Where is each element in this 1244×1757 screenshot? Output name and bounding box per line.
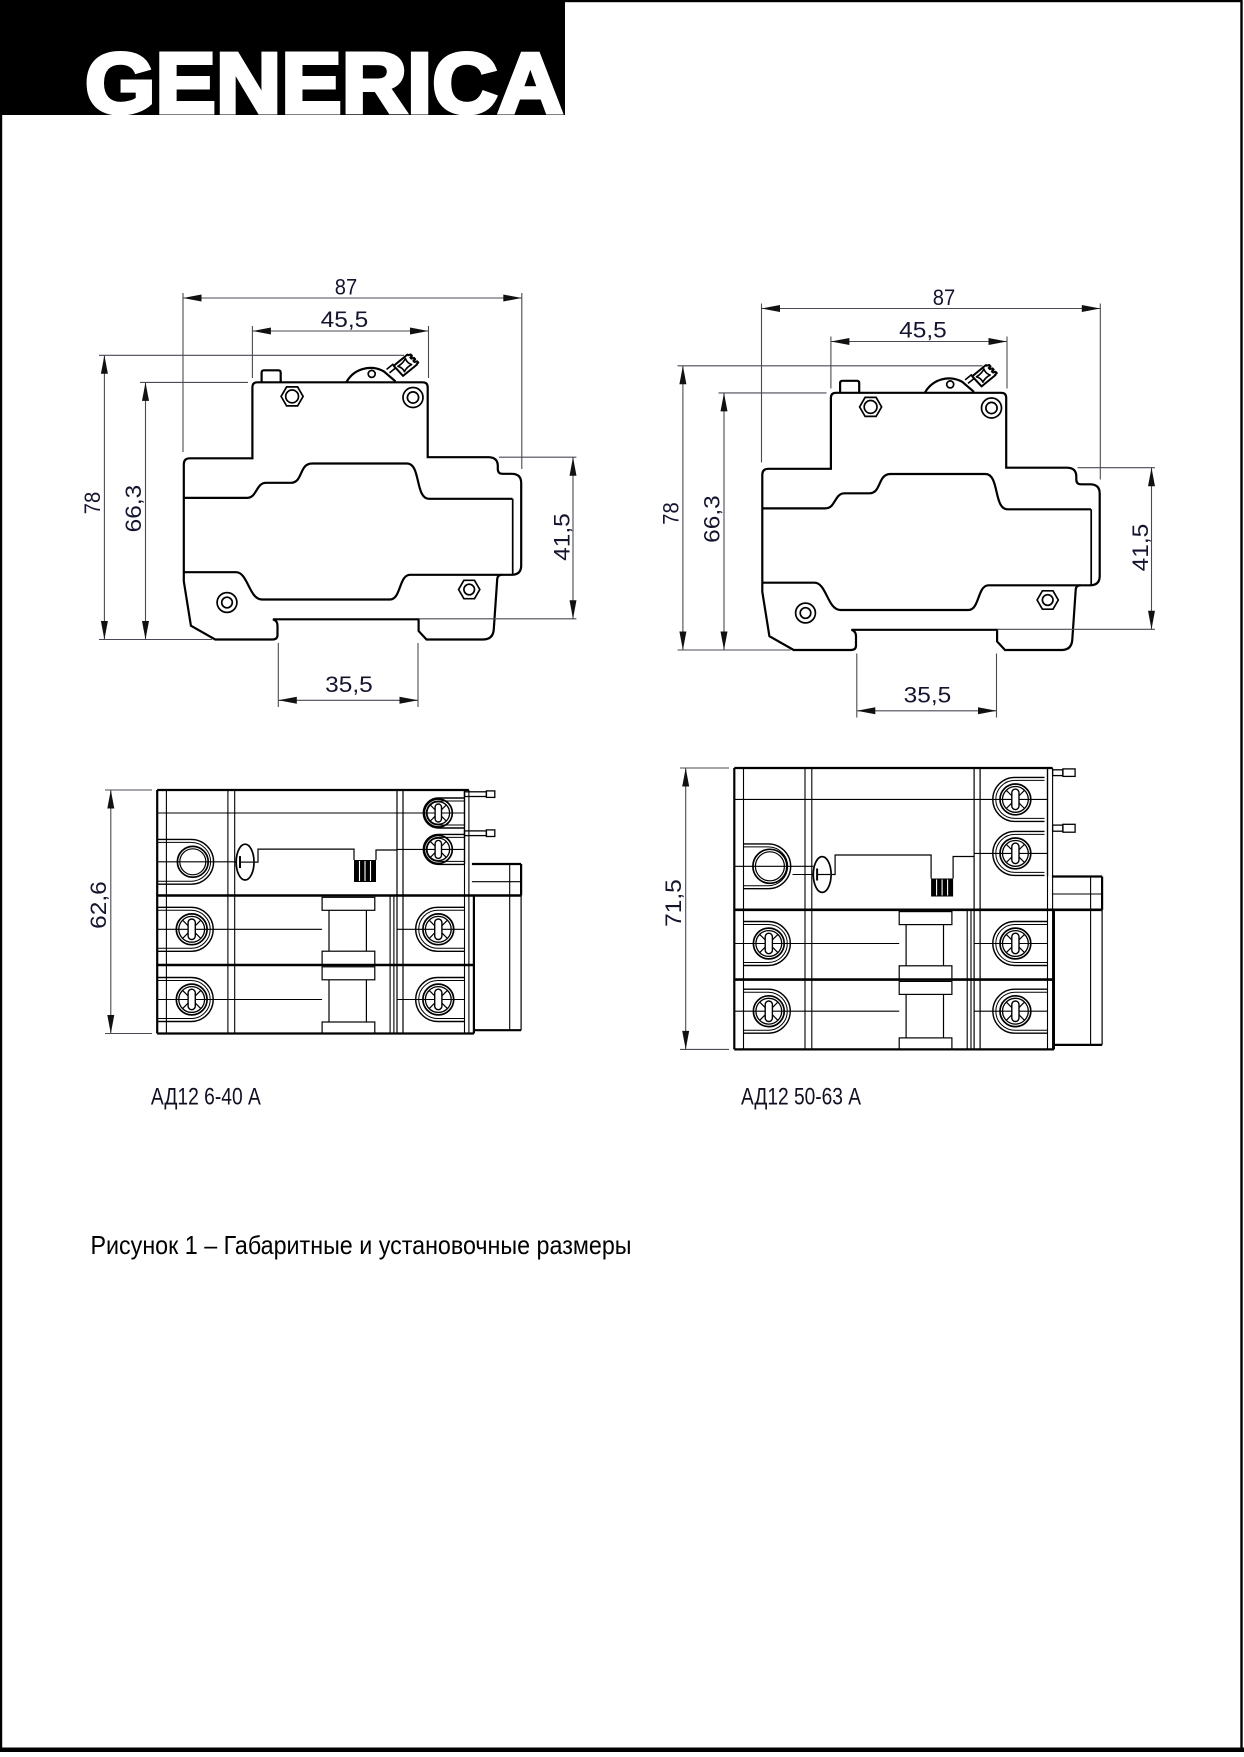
svg-text:АД12 6-40 А: АД12 6-40 А [151,1083,261,1110]
svg-text:78: 78 [80,492,105,514]
svg-text:45,5: 45,5 [899,318,947,343]
svg-text:45,5: 45,5 [321,307,369,332]
svg-text:66,3: 66,3 [121,485,146,533]
svg-text:35,5: 35,5 [904,683,952,708]
svg-text:71,5: 71,5 [661,879,686,927]
svg-text:66,3: 66,3 [700,495,725,543]
svg-text:35,5: 35,5 [325,672,373,697]
svg-text:87: 87 [335,275,357,300]
svg-text:87: 87 [933,285,955,310]
svg-text:62,6: 62,6 [86,881,111,929]
svg-text:41,5: 41,5 [1128,524,1153,572]
svg-text:АД12 50-63 А: АД12 50-63 А [741,1083,861,1110]
svg-text:Рисунок 1 – Габаритные и устан: Рисунок 1 – Габаритные и установочные ра… [91,1230,632,1260]
svg-text:41,5: 41,5 [550,513,575,561]
svg-text:78: 78 [658,502,683,524]
svg-text:GENERICA: GENERICA [85,37,563,132]
